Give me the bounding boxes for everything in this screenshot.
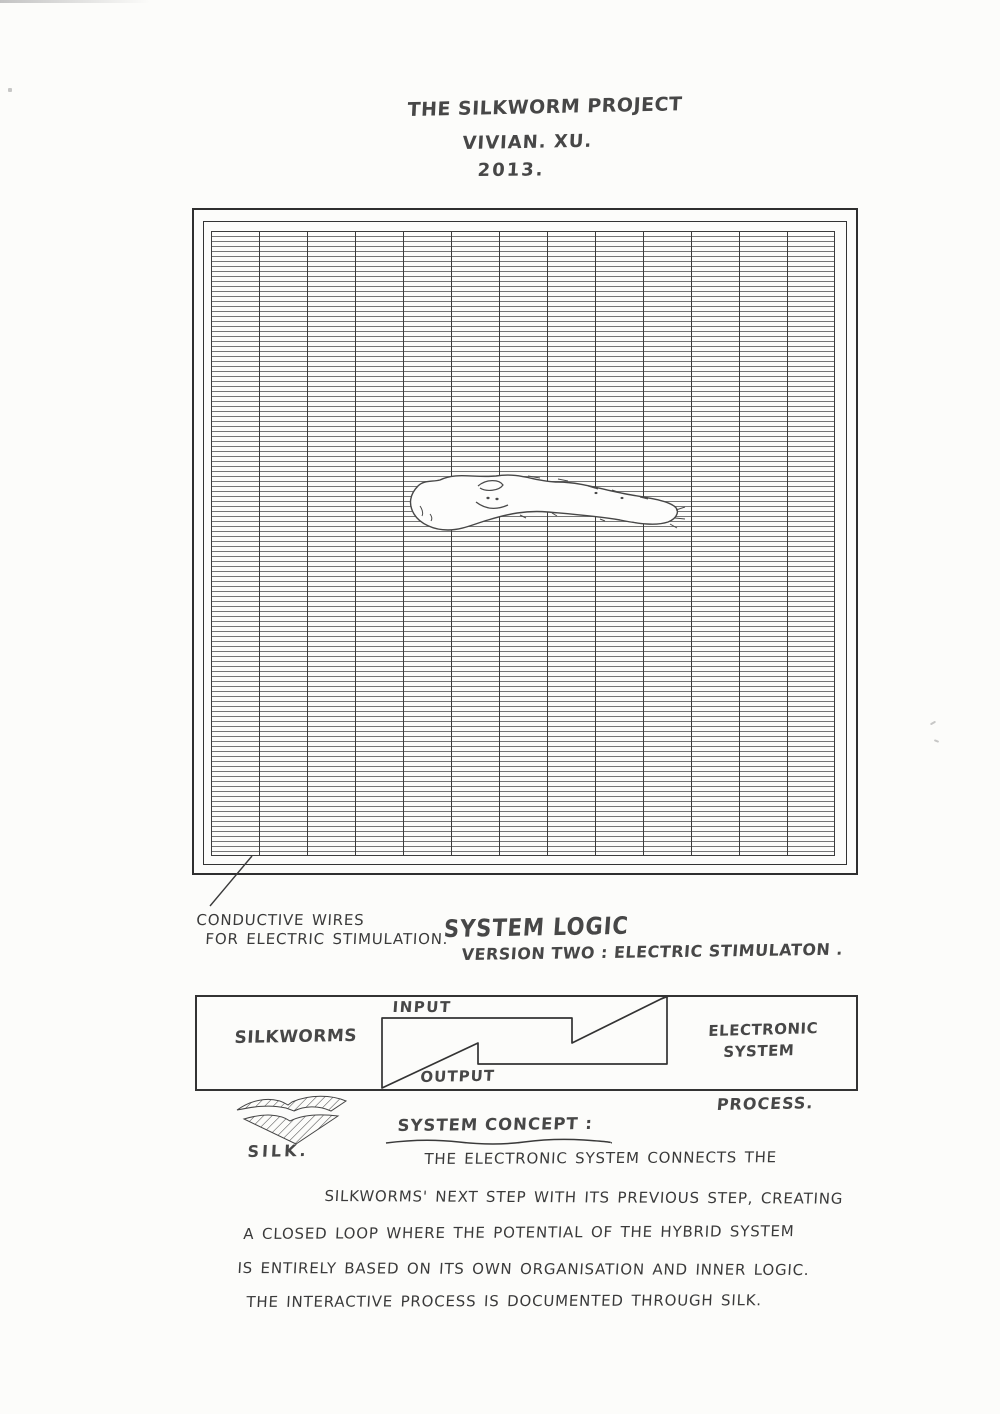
system-logic-heading: SYSTEM LOGIC: [443, 913, 630, 943]
page-title: THE SILKWORM PROJECT: [407, 94, 683, 121]
grid-caption-line1: CONDUCTIVE WIRES: [196, 912, 365, 929]
flow-label-input: INPUT: [392, 999, 452, 1016]
flow-label-electronic: ELECTRONIC: [708, 1020, 818, 1039]
concept-line-3: A CLOSED LOOP WHERE THE POTENTIAL OF THE…: [243, 1223, 795, 1242]
leader-line: [200, 852, 260, 910]
process-label: PROCESS.: [716, 1094, 814, 1113]
silkworm-outline-drawing: [400, 460, 700, 545]
concept-line-4: IS ENTIRELY BASED ON ITS OWN ORGANISATIO…: [237, 1260, 810, 1278]
page-author: VIVIAN. XU.: [462, 132, 593, 154]
scan-edge: [0, 0, 150, 3]
scan-speck: [934, 739, 939, 743]
page-year: 2013.: [477, 160, 545, 180]
silk-label: SILK.: [247, 1142, 309, 1161]
concept-heading: SYSTEM CONCEPT :: [397, 1115, 593, 1135]
scan-speck: [930, 721, 936, 726]
flow-label-system: SYSTEM: [723, 1042, 795, 1060]
concept-underline: [384, 1136, 614, 1148]
scanned-sketch-page: THE SILKWORM PROJECT VIVIAN. XU. 2013. C…: [0, 0, 1000, 1414]
concept-line-2: SILKWORMS' NEXT STEP WITH ITS PREVIOUS S…: [324, 1188, 844, 1207]
system-logic-subheading: VERSION TWO : ELECTRIC STIMULATON .: [461, 941, 844, 964]
flow-label-silkworms: SILKWORMS: [234, 1027, 357, 1048]
grid-caption-line2: FOR ELECTRIC STIMULATION.: [205, 931, 449, 948]
concept-line-5: THE INTERACTIVE PROCESS IS DOCUMENTED TH…: [246, 1292, 762, 1310]
flow-label-output: OUTPUT: [420, 1068, 495, 1086]
hatched-chevron-silk-icon: [234, 1094, 350, 1146]
scan-speck: [8, 88, 12, 92]
concept-line-1: THE ELECTRONIC SYSTEM CONNECTS THE: [424, 1149, 777, 1167]
